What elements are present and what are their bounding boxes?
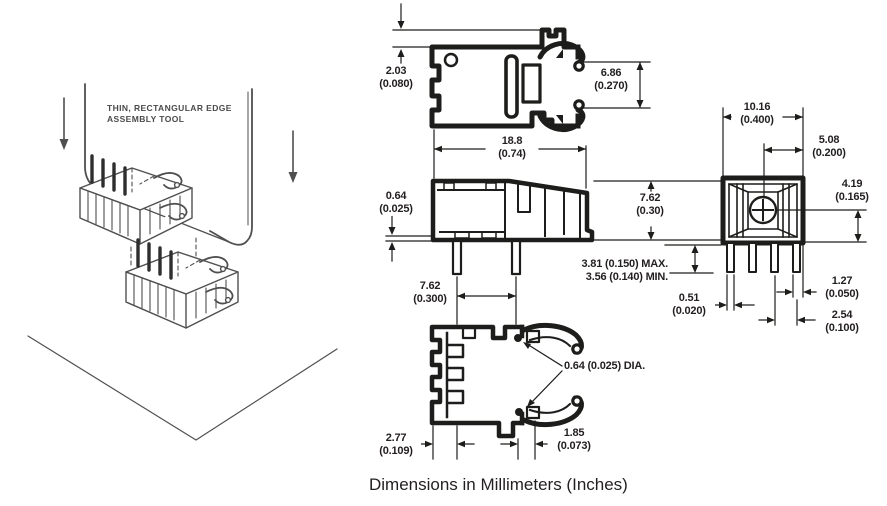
pin — [453, 241, 461, 274]
dim-jaw-opening: 6.86 (0.270) — [587, 67, 635, 93]
dim-tab-height: 2.03 (0.080) — [371, 65, 421, 91]
tool-label-line1: THIN, RECTANGULAR EDGE — [107, 103, 232, 114]
dim-standoff: 0.64 (0.025) — [371, 190, 421, 216]
dim-in: (0.270) — [587, 80, 635, 93]
dim-in: (0.30) — [625, 205, 675, 218]
dim-mm: 0.64 — [371, 190, 421, 203]
dim-mm: 10.16 — [732, 101, 782, 114]
dim-mm: 1.27 — [818, 275, 866, 288]
dim-edge-offset: 2.77 (0.109) — [371, 432, 421, 458]
dim-mm: 1.85 — [549, 427, 599, 440]
dim-in: (0.050) — [818, 288, 866, 301]
units-caption: Dimensions in Millimeters (Inches) — [369, 475, 628, 495]
pin — [512, 241, 520, 274]
dim-in: (0.020) — [663, 305, 715, 318]
pin — [727, 243, 734, 272]
dim-body-height: 7.62 (0.30) — [625, 192, 675, 218]
dim-in: (0.080) — [371, 78, 421, 91]
down-arrow-left-icon — [60, 98, 69, 150]
board-edge — [28, 336, 337, 440]
dim-center-offset: 5.08 (0.200) — [804, 134, 854, 160]
dim-overall-length: 18.8 (0.74) — [487, 135, 537, 161]
pin — [771, 243, 778, 272]
dim-mm: 0.51 — [663, 292, 715, 305]
clip-upper — [80, 156, 192, 244]
diagram-canvas — [0, 0, 887, 506]
dim-mm: 4.19 — [827, 178, 877, 191]
bottom-profile-view — [432, 325, 582, 436]
front-view — [723, 178, 803, 272]
dim-in: (0.74) — [487, 148, 537, 161]
dim-pin-width: 0.51 (0.020) — [663, 292, 715, 318]
pin — [793, 243, 800, 272]
dim-body-width: 10.16 (0.400) — [732, 101, 782, 127]
dim-in: (0.300) — [406, 293, 454, 306]
dim-mount-height: 4.19 (0.165) — [827, 178, 877, 204]
dim-in: (0.165) — [827, 191, 877, 204]
wire-hole — [514, 334, 522, 342]
dim-mm: 2.54 — [818, 309, 866, 322]
dim-mm: 6.86 — [587, 67, 635, 80]
dim-mm: 2.77 — [371, 432, 421, 445]
dim-in: (0.073) — [549, 440, 599, 453]
dim-in: (0.400) — [732, 114, 782, 127]
dim-pin-pitch: 2.54 (0.100) — [818, 309, 866, 335]
assembly-illustration — [28, 84, 337, 440]
tool-label-line2: ASSEMBLY TOOL — [107, 114, 232, 125]
wire-hole — [515, 408, 523, 416]
dim-pin-length: 3.81 (0.150) MAX. 3.56 (0.140) MIN. — [556, 258, 668, 284]
dim-mm: 7.62 — [625, 192, 675, 205]
dim-mm: 2.03 — [371, 65, 421, 78]
dim-in: (0.100) — [818, 322, 866, 335]
dim-wire-diameter: 0.64 (0.025) DIA. — [564, 360, 682, 373]
dim-mm: 5.08 — [804, 134, 854, 147]
dim-mm: 7.62 — [406, 280, 454, 293]
dim-pin-spacing: 7.62 (0.300) — [406, 280, 454, 306]
down-arrow-right-icon — [289, 131, 298, 183]
dim-label: 0.64 (0.025) DIA. — [564, 360, 645, 372]
dim-in: (0.025) — [371, 203, 421, 216]
tool-label: THIN, RECTANGULAR EDGE ASSEMBLY TOOL — [107, 103, 232, 124]
dim-tab-width: 1.85 (0.073) — [549, 427, 599, 453]
dim-mm: 18.8 — [487, 135, 537, 148]
dim-pin-edge-gap: 1.27 (0.050) — [818, 275, 866, 301]
top-profile-view — [432, 30, 583, 130]
dim-max: 3.81 (0.150) MAX. — [556, 258, 668, 271]
pin — [749, 243, 756, 272]
dim-min: 3.56 (0.140) MIN. — [556, 271, 668, 284]
dim-in: (0.200) — [804, 147, 854, 160]
engineering-drawing-page: THIN, RECTANGULAR EDGE ASSEMBLY TOOL 2.0… — [0, 0, 887, 506]
clip-lower — [126, 240, 238, 328]
dim-in: (0.109) — [371, 445, 421, 458]
